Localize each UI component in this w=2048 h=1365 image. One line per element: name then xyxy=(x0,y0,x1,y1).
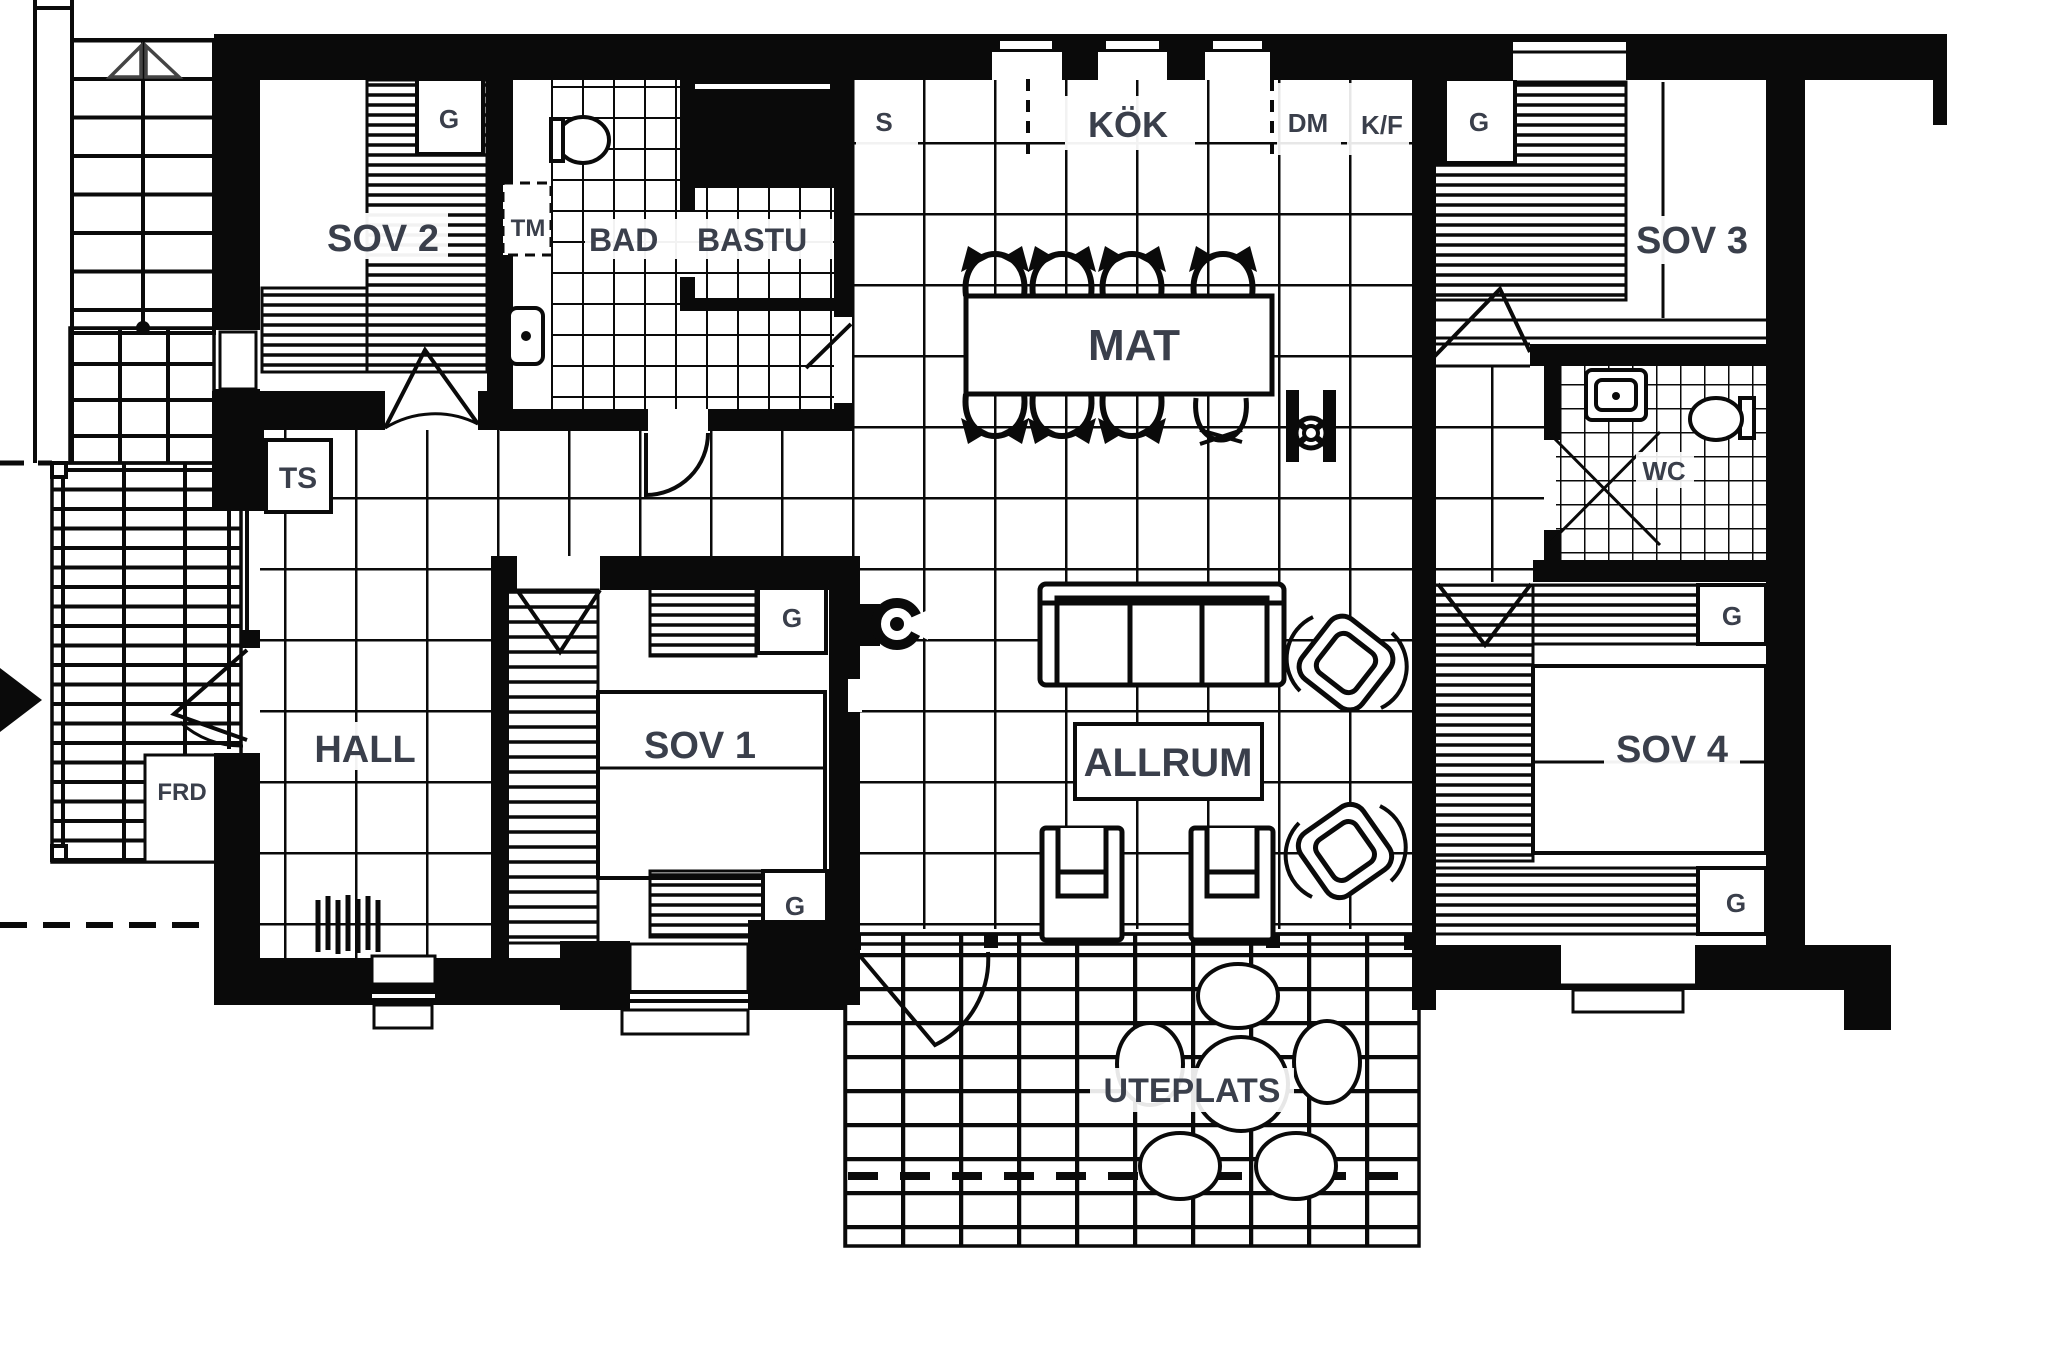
svg-text:G: G xyxy=(1722,601,1742,631)
svg-text:G: G xyxy=(782,603,802,633)
svg-text:G: G xyxy=(785,891,805,921)
svg-text:TS: TS xyxy=(279,462,317,495)
svg-text:BAD: BAD xyxy=(589,222,658,258)
svg-text:UTEPLATS: UTEPLATS xyxy=(1104,1072,1281,1110)
svg-text:TM: TM xyxy=(511,215,546,242)
svg-text:SOV 1: SOV 1 xyxy=(644,725,756,767)
svg-text:KÖK: KÖK xyxy=(1088,104,1168,145)
svg-text:SOV 4: SOV 4 xyxy=(1616,729,1728,771)
svg-text:G: G xyxy=(1726,888,1746,918)
svg-text:ALLRUM: ALLRUM xyxy=(1084,741,1253,785)
svg-text:FRD: FRD xyxy=(157,779,206,806)
svg-text:SOV 2: SOV 2 xyxy=(327,218,439,260)
svg-text:G: G xyxy=(439,104,459,134)
svg-text:MAT: MAT xyxy=(1088,321,1180,370)
svg-text:DM: DM xyxy=(1288,108,1328,138)
svg-text:HALL: HALL xyxy=(314,729,415,771)
svg-text:BASTU: BASTU xyxy=(697,222,807,258)
svg-text:G: G xyxy=(1469,107,1489,137)
svg-text:S: S xyxy=(875,107,892,137)
svg-text:WC: WC xyxy=(1642,456,1686,486)
svg-text:SOV 3: SOV 3 xyxy=(1636,220,1748,262)
svg-text:K/F: K/F xyxy=(1361,110,1403,140)
